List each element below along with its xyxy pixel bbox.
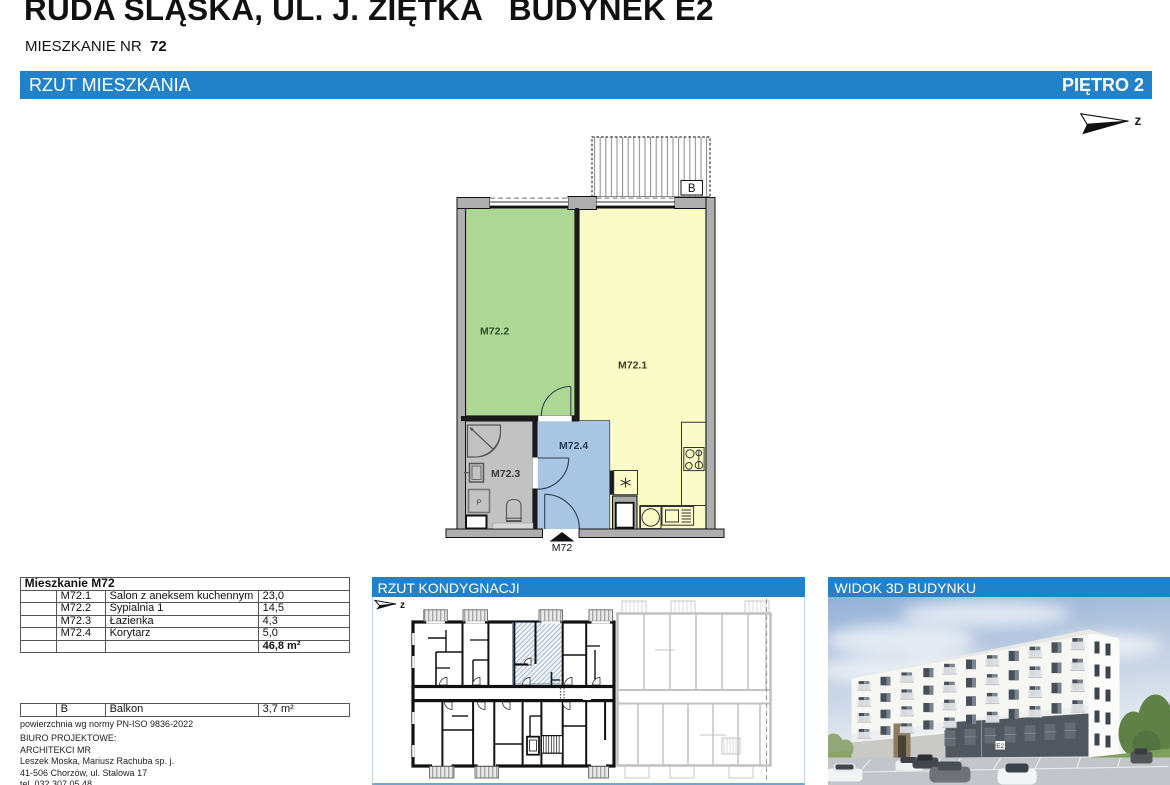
- svg-text:M72.2: M72.2: [480, 326, 509, 338]
- svg-text:P: P: [477, 500, 482, 507]
- svg-text:z: z: [400, 600, 405, 611]
- svg-text:E2: E2: [996, 743, 1004, 750]
- svg-text:M72.3: M72.3: [491, 468, 520, 480]
- svg-text:z: z: [1135, 113, 1142, 128]
- svg-text:M72.1: M72.1: [618, 360, 647, 372]
- svg-text:M72.4: M72.4: [559, 440, 588, 452]
- svg-text:B: B: [688, 183, 696, 195]
- svg-text:M72: M72: [552, 542, 573, 554]
